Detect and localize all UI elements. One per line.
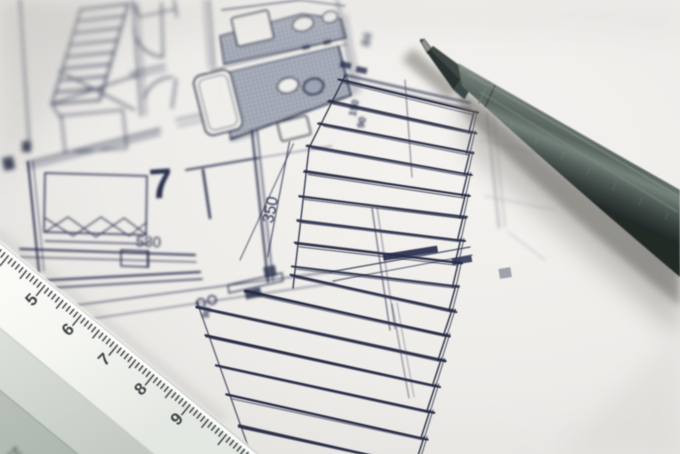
svg-text:7: 7 — [148, 159, 175, 208]
svg-text:580: 580 — [136, 234, 162, 252]
